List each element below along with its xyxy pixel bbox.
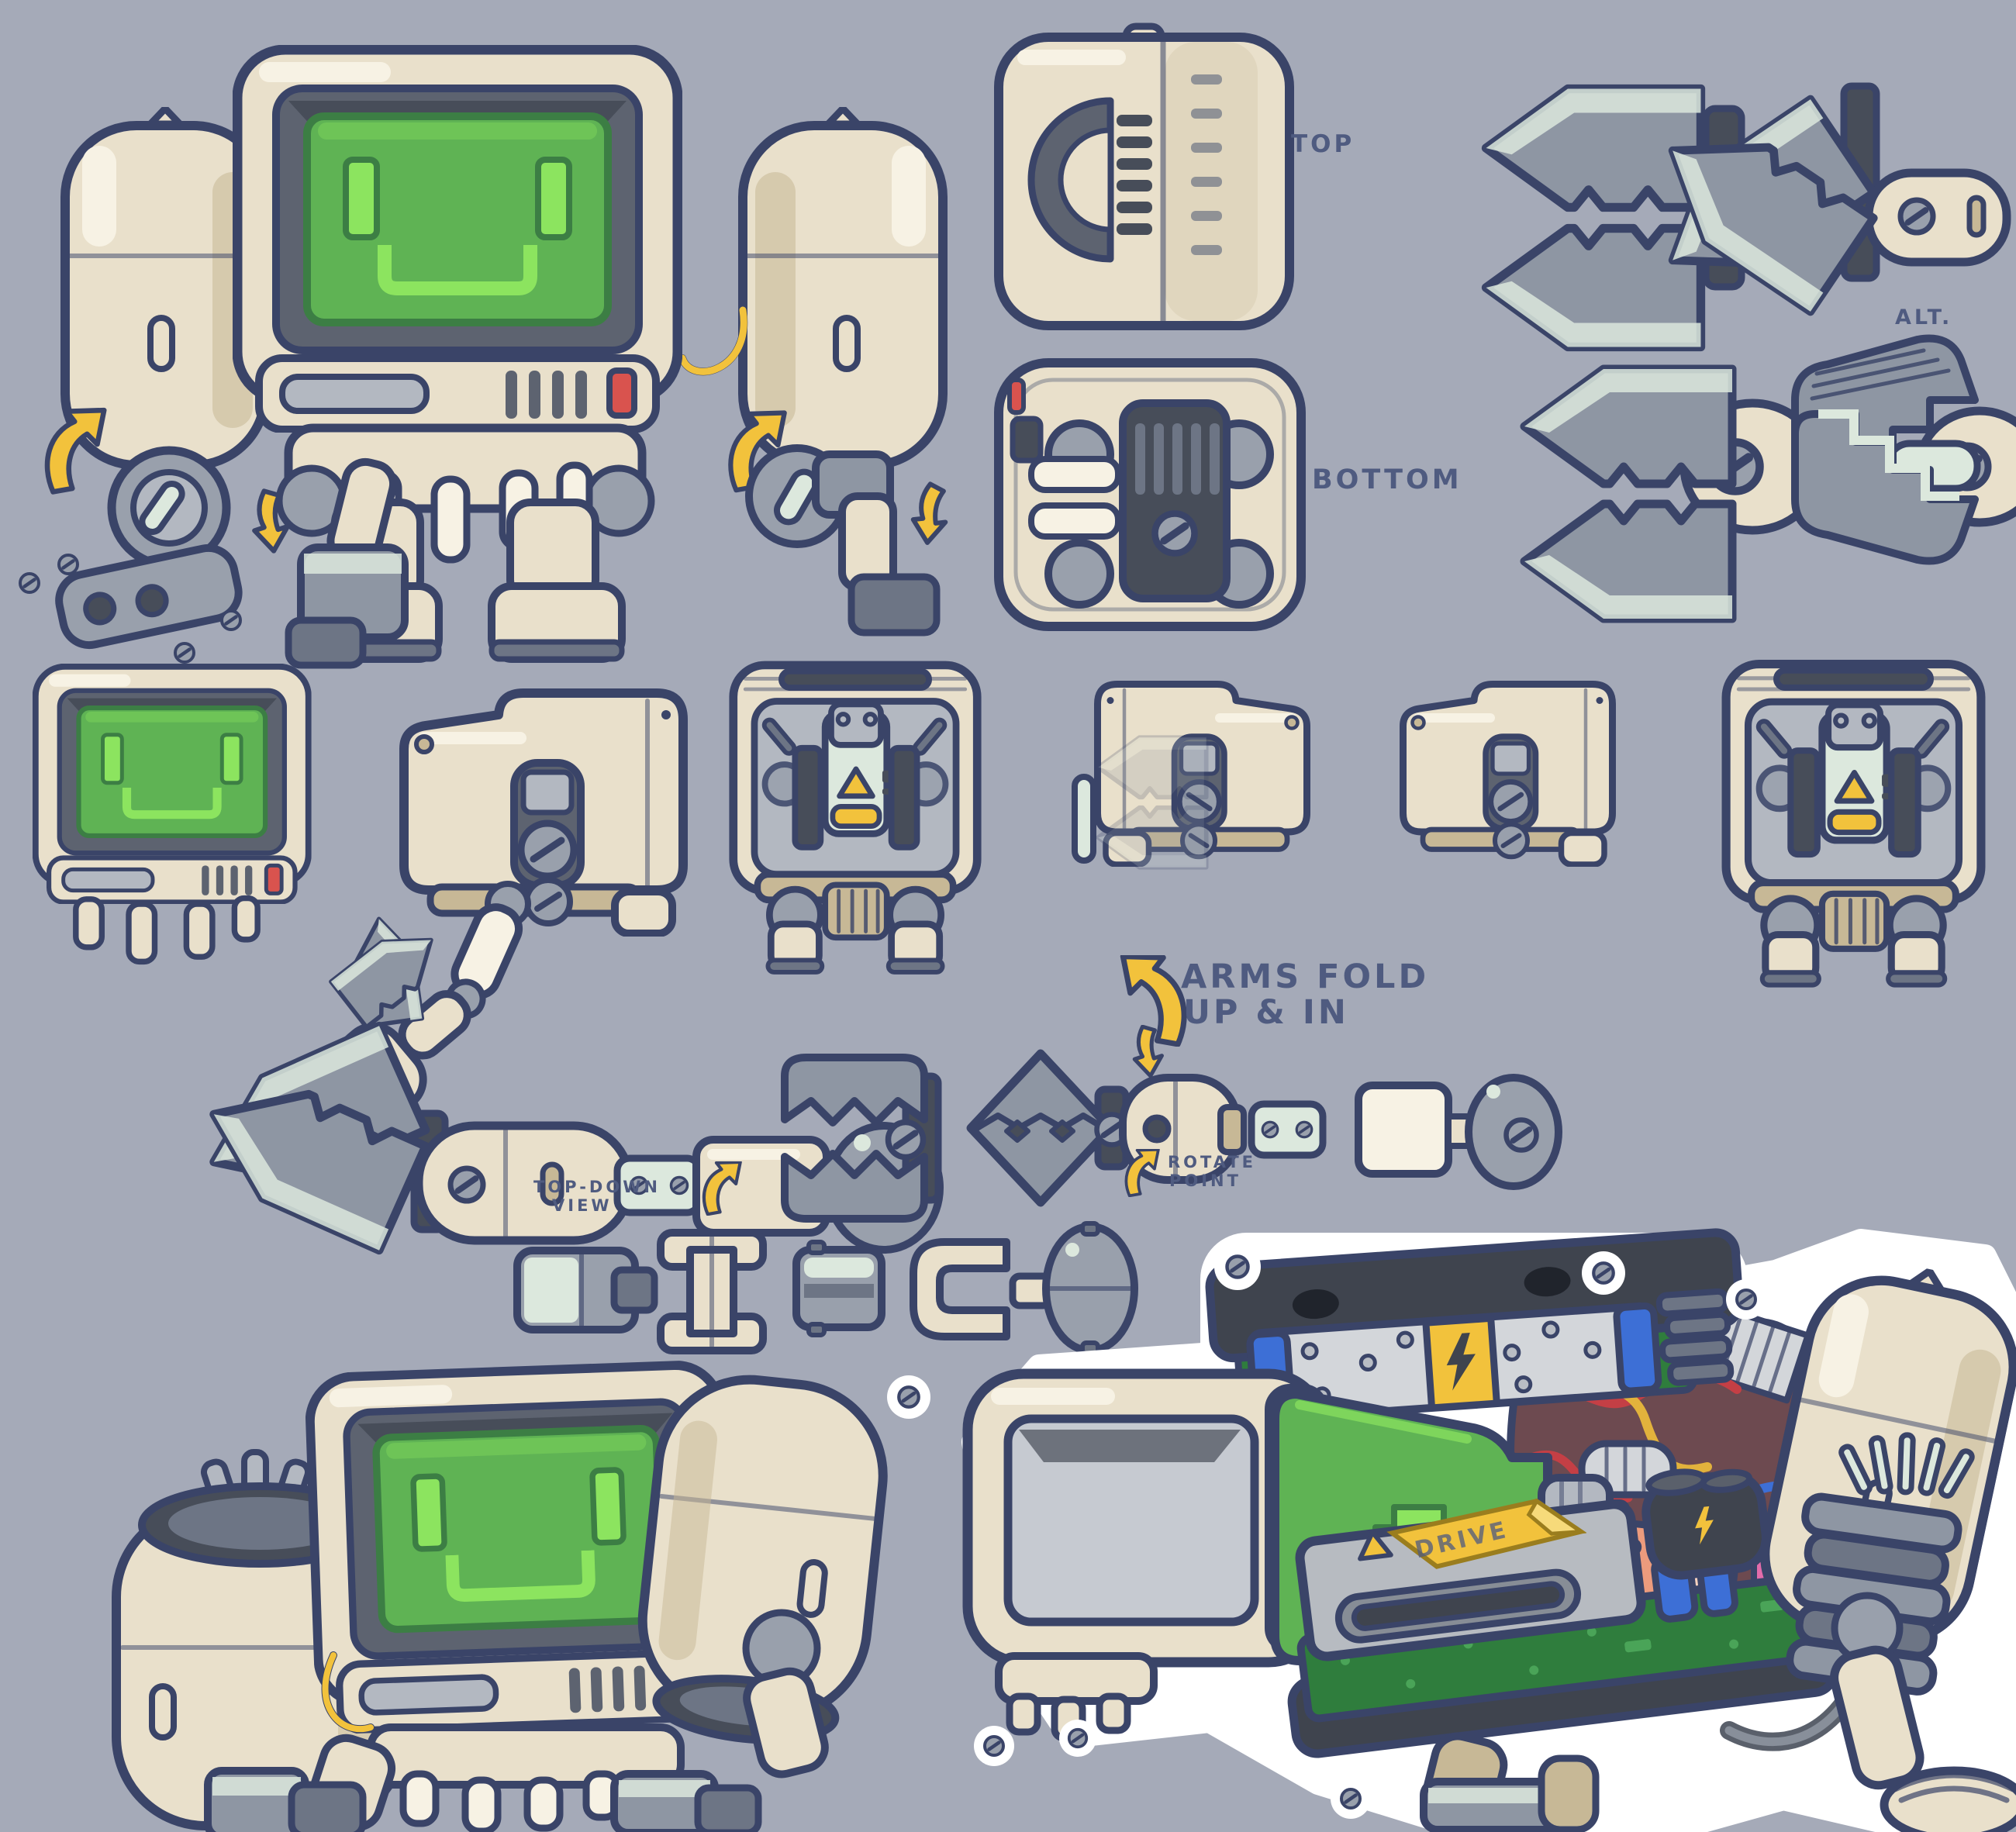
view-bottom bbox=[999, 363, 1301, 626]
view-head-front bbox=[36, 667, 309, 962]
foot-pod-dome bbox=[1884, 1771, 2016, 1832]
down-arrow-icon bbox=[910, 482, 953, 546]
view-side-ghost-claw bbox=[1075, 685, 1307, 868]
part-wrist-joint bbox=[661, 1233, 763, 1351]
crt-head-front bbox=[237, 50, 678, 430]
label-view: VIEW bbox=[552, 1196, 613, 1215]
part-bracket bbox=[913, 1242, 1006, 1337]
label-alt: ALT. bbox=[1895, 305, 1952, 329]
view-walking-robot bbox=[116, 1364, 892, 1832]
shoulder-cable-right bbox=[682, 310, 744, 371]
robot-model-sheet: TOP BOTTOM bbox=[0, 0, 2016, 1832]
part-shoulder-disc bbox=[1013, 1223, 1134, 1354]
label-top: TOP bbox=[1291, 130, 1355, 158]
view-back-arms-folded bbox=[734, 665, 977, 972]
claw-closed-quarter bbox=[1524, 369, 1821, 619]
view-side-plain bbox=[1403, 685, 1613, 865]
hinge-plate bbox=[54, 543, 243, 650]
label-bottom: BOTTOM bbox=[1312, 464, 1462, 495]
claw-studies bbox=[1486, 86, 2016, 619]
claw-closed-front bbox=[971, 1054, 1127, 1202]
label-rotate: ROTATE bbox=[1168, 1153, 1256, 1171]
view-top bbox=[999, 26, 1289, 326]
label-arms-fold-1: ARMS FOLD bbox=[1181, 957, 1429, 996]
label-arms-fold-2: UP & IN bbox=[1183, 993, 1349, 1032]
view-back-second bbox=[1726, 664, 1981, 985]
label-point: POINT bbox=[1169, 1171, 1241, 1190]
capacitor-stack bbox=[1641, 1462, 1769, 1578]
top-down-arm-parts bbox=[517, 1223, 1134, 1354]
part-claw-topdown bbox=[517, 1251, 654, 1330]
part-link bbox=[796, 1242, 882, 1335]
label-top-down: TOP-DOWN bbox=[533, 1178, 661, 1196]
claw-alt-design bbox=[1795, 338, 2016, 561]
